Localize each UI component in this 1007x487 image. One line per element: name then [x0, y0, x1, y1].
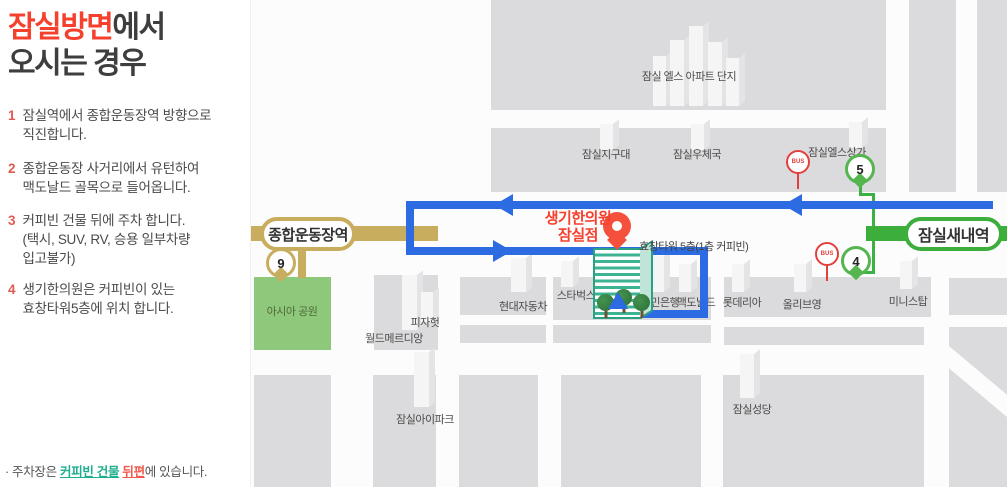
label-lotteria: 롯데리아 — [723, 294, 761, 310]
step-3: 3 커피빈 건물 뒤에 주차 합니다. (택시, SUV, RV, 승용 일부차… — [8, 211, 244, 268]
building-icon — [511, 258, 526, 292]
exit-pin-4: 4 — [841, 246, 871, 276]
step-2-number: 2 — [8, 159, 16, 197]
building-icon — [900, 261, 912, 289]
bus-stop-icon: BUS — [815, 242, 839, 266]
label-starbucks: 스타벅스 — [557, 287, 595, 303]
exit-number: 5 — [856, 162, 863, 177]
city-block — [459, 375, 538, 487]
bus-stop-icon: BUS — [786, 150, 810, 174]
route-arrow-left-icon — [783, 194, 802, 216]
map-canvas: 잠실 엘스 아파트 단지 잠실지구대 잠실우체국 잠실엘스상가 아시아 공원 월… — [250, 0, 1007, 487]
footnote-suffix: 에 있습니다. — [145, 465, 207, 479]
title-rest: 에서 — [112, 11, 164, 44]
exit-pin-9: 9 — [266, 248, 296, 278]
route-arrow-left-icon — [494, 194, 513, 216]
directions-map-page: { "panel": { "title_highlight": "잠실방면", … — [0, 0, 1007, 487]
step-4-number: 4 — [8, 280, 16, 318]
step-3-number: 3 — [8, 211, 16, 268]
station-name: 잠실새내역 — [918, 222, 989, 246]
step-4: 4 생기한의원은 커피빈이 있는 효창타워5층에 위치 합니다. — [8, 280, 244, 318]
route-segment-alley-down — [700, 247, 708, 318]
step-2: 2 종합운동장 사거리에서 유턴하여 맥도날드 골목으로 들어옵니다. — [8, 159, 244, 197]
title-highlight: 잠실방면 — [8, 11, 112, 44]
label-pizza-hut: 피자헛 — [411, 314, 440, 330]
line-9-exit-stub — [298, 248, 306, 278]
exit-number: 9 — [277, 256, 284, 271]
label-world-meridian: 월드메르디앙 — [365, 330, 423, 346]
label-ministop: 미니스탑 — [889, 293, 927, 309]
city-block — [724, 327, 924, 345]
building-icon — [794, 264, 806, 292]
label-jigudae: 잠실지구대 — [582, 146, 630, 162]
city-block — [977, 0, 1007, 192]
footnote-prefix: · 주차장은 — [5, 465, 60, 479]
city-block — [254, 375, 331, 487]
exit-pin-5: 5 — [845, 154, 875, 184]
coffeebean-building-link[interactable]: 커피빈 건물 — [60, 465, 119, 479]
label-apartment: 잠실 엘스 아파트 단지 — [642, 68, 736, 84]
bus-label: BUS — [821, 251, 834, 257]
exit-number: 4 — [852, 254, 859, 269]
route-arrow-right-icon — [493, 240, 512, 262]
hyochang-tower-label: 효창타워 5층(1층 커피빈) — [639, 238, 748, 254]
city-block — [949, 278, 1007, 315]
city-block — [460, 325, 546, 343]
step-3-text: 커피빈 건물 뒤에 주차 합니다. (택시, SUV, RV, 승용 일부차량 … — [23, 211, 191, 268]
step-2-text: 종합운동장 사거리에서 유턴하여 맥도날드 골목으로 들어옵니다. — [23, 159, 200, 197]
building-icon — [740, 354, 754, 398]
building-icon — [561, 261, 573, 287]
instructions-panel: 잠실방면에서 오시는 경우 1 잠실역에서 종합운동장역 방향으로 직진합니다.… — [0, 0, 250, 487]
step-1-text: 잠실역에서 종합운동장역 방향으로 직진합니다. — [23, 106, 212, 144]
label-cathedral: 잠실성당 — [733, 401, 771, 417]
label-post-office: 잠실우체국 — [673, 146, 721, 162]
label-ipark: 잠실아이파크 — [396, 411, 454, 427]
behind-link[interactable]: 뒤편 — [122, 465, 144, 479]
label-olive-young: 올리브영 — [783, 296, 821, 312]
city-block — [553, 325, 711, 343]
label-hyundai: 현대자동차 — [499, 298, 547, 314]
city-block — [909, 0, 956, 192]
building-icon — [689, 26, 703, 106]
station-name: 종합운동장역 — [268, 224, 348, 245]
station-pill-sports-complex: 종합운동장역 — [260, 217, 356, 251]
page-title: 잠실방면에서 오시는 경우 — [8, 10, 165, 82]
step-1-number: 1 — [8, 106, 16, 144]
city-block — [561, 375, 701, 487]
title-line2: 오시는 경우 — [8, 47, 145, 80]
building-icon — [732, 264, 744, 292]
parking-footnote: · 주차장은 커피빈 건물 뒤편에 있습니다. — [5, 461, 207, 480]
tree-icon — [633, 294, 650, 311]
label-mcdonalds: 맥도날드 — [677, 294, 715, 310]
step-1: 1 잠실역에서 종합운동장역 방향으로 직진합니다. — [8, 106, 244, 144]
route-arrow-up-icon — [608, 292, 628, 309]
station-pill-jamsilsaenae: 잠실새내역 — [904, 217, 1003, 251]
label-asia-park: 아시아 공원 — [267, 303, 318, 319]
building-icon — [414, 352, 429, 407]
destination-label: 생기한의원 잠실점 — [545, 210, 612, 245]
building-icon — [679, 264, 691, 292]
step-4-text: 생기한의원은 커피빈이 있는 효창타워5층에 위치 합니다. — [23, 280, 175, 318]
bus-label: BUS — [792, 159, 805, 165]
